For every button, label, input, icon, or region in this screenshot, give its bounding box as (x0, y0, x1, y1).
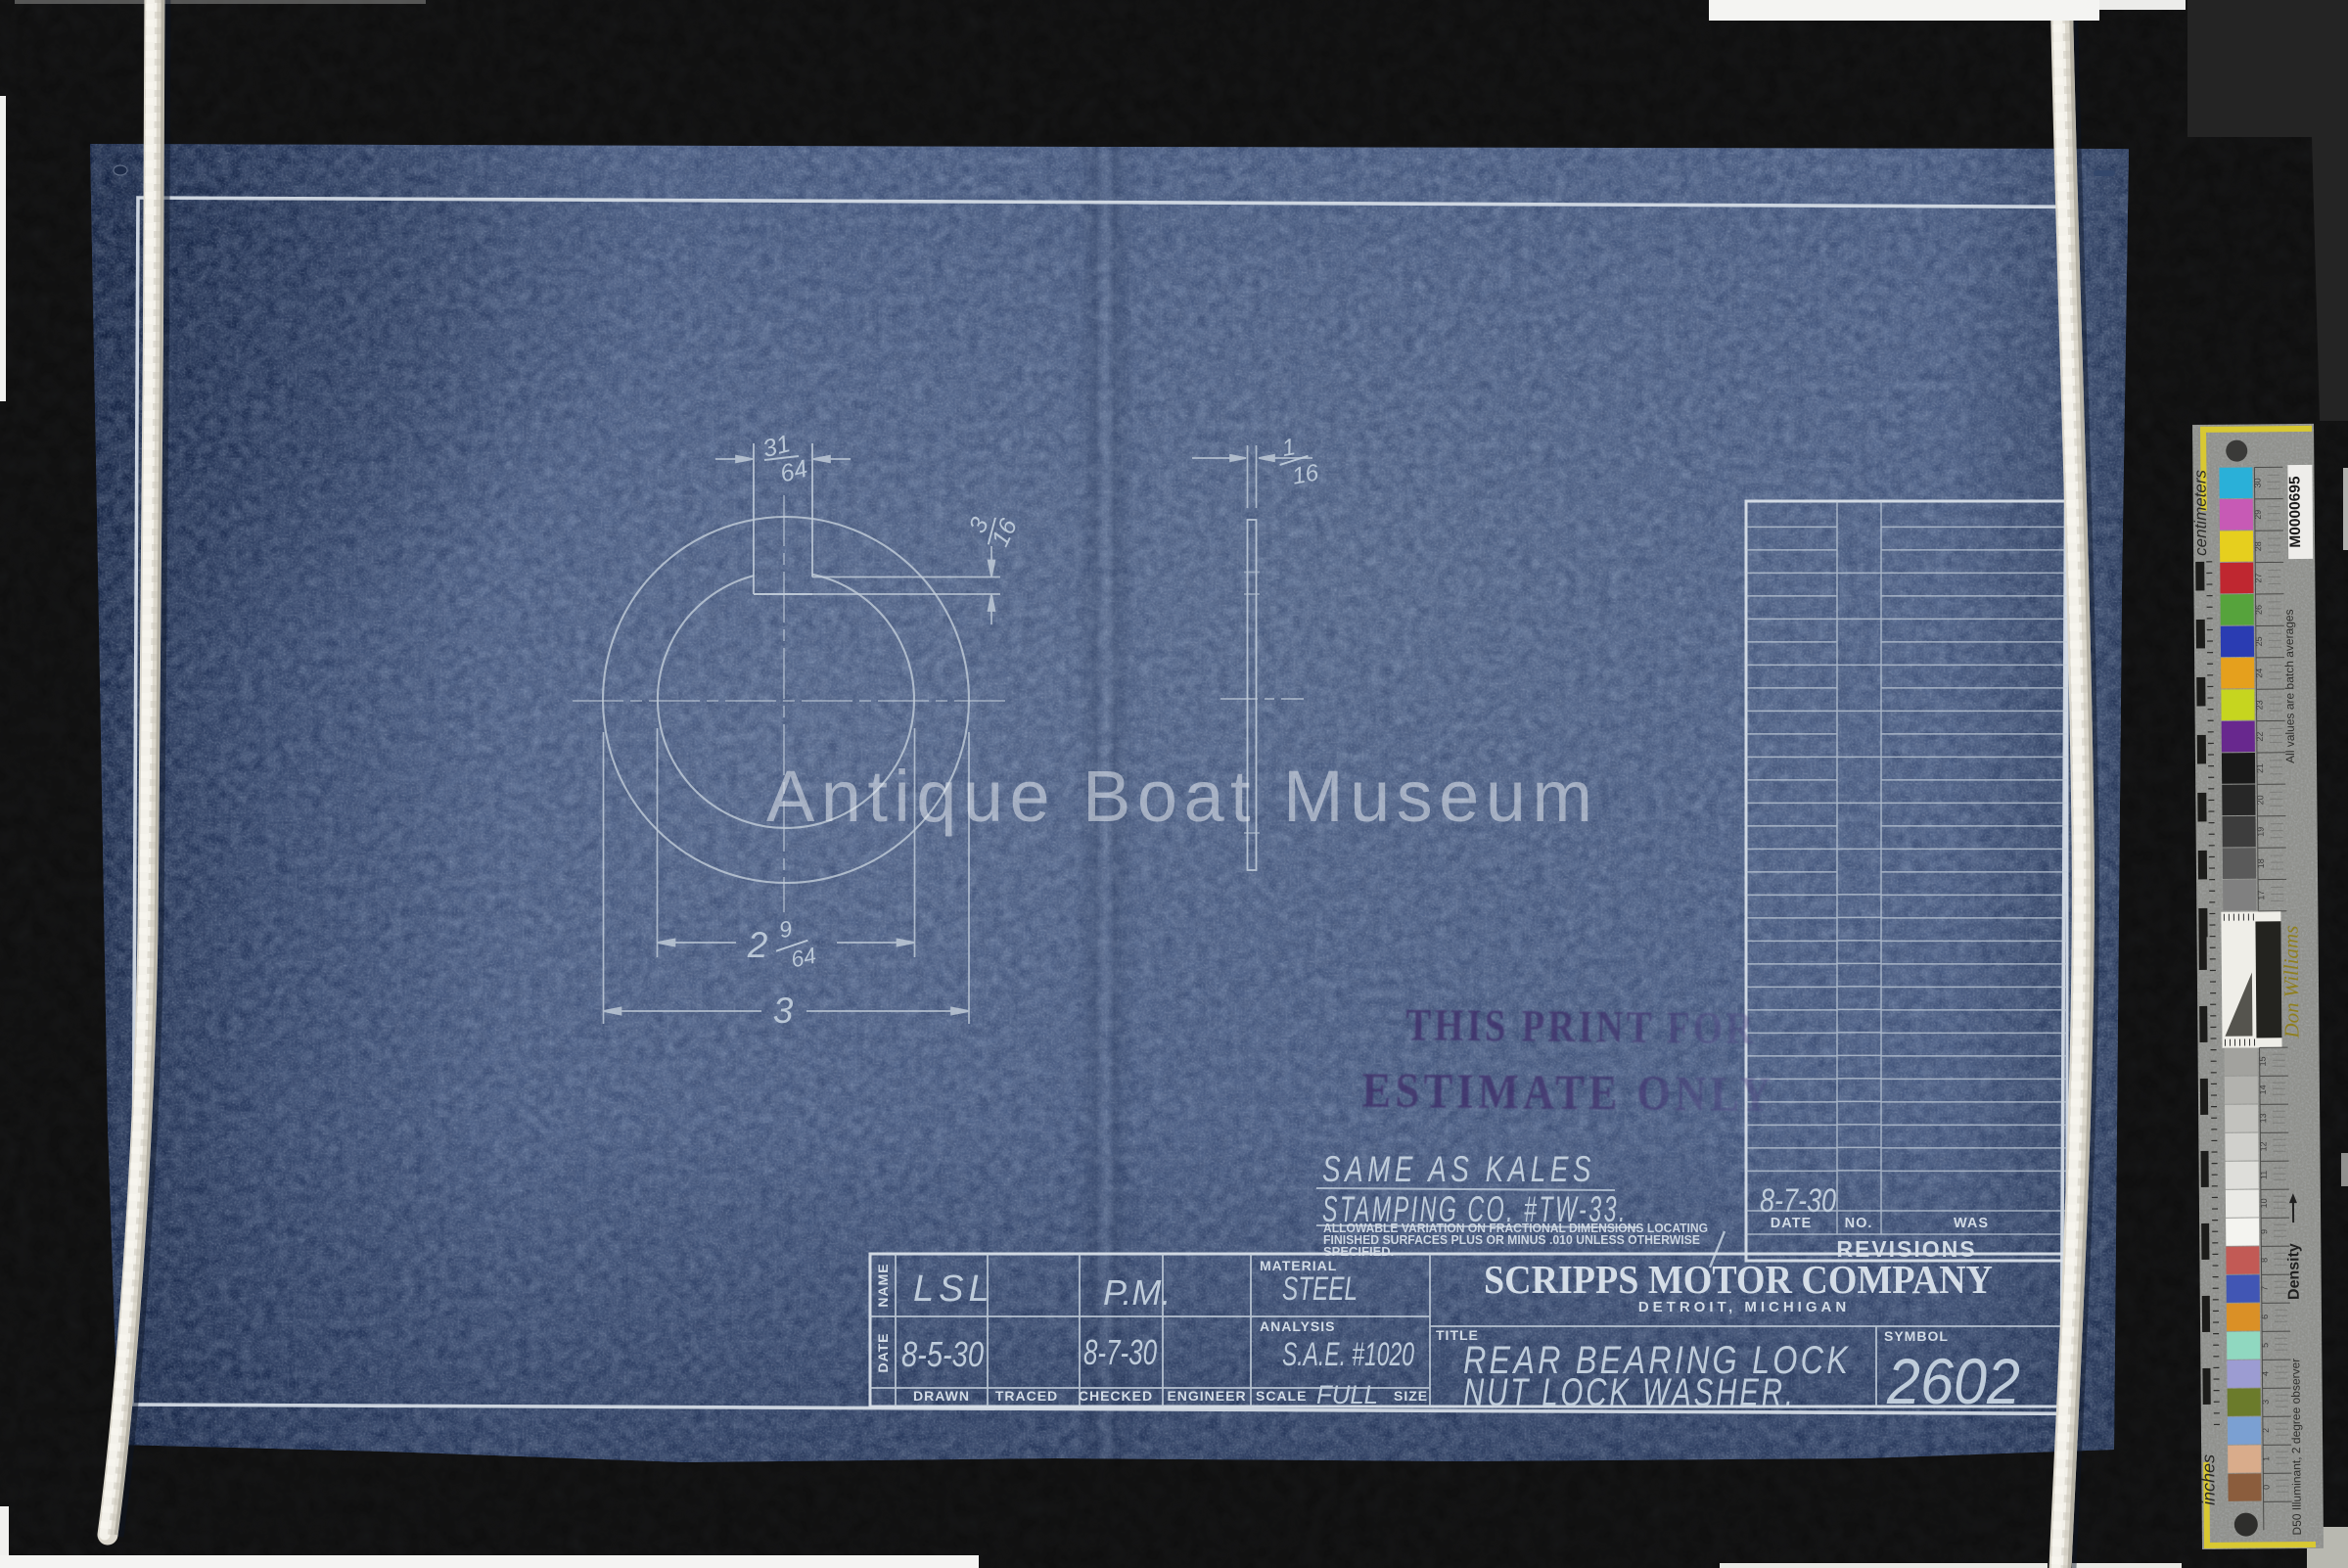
svg-text:16: 16 (1290, 459, 1321, 489)
svg-text:17: 17 (2256, 891, 2266, 900)
svg-text:2: 2 (747, 925, 768, 965)
svg-text:22: 22 (2255, 732, 2265, 742)
svg-text:NO.: NO. (1845, 1216, 1873, 1231)
svg-text:Don Williams: Don Williams (2279, 926, 2303, 1039)
svg-text:8-7-30: 8-7-30 (1760, 1182, 1836, 1220)
svg-text:18: 18 (2256, 858, 2266, 868)
svg-text:8-5-30: 8-5-30 (901, 1334, 984, 1374)
svg-text:15: 15 (2258, 1056, 2268, 1066)
svg-text:DETROIT, MICHIGAN: DETROIT, MICHIGAN (1638, 1299, 1850, 1315)
svg-text:14: 14 (2258, 1084, 2268, 1094)
svg-text:TRACED: TRACED (995, 1388, 1058, 1404)
svg-text:centimeters: centimeters (2190, 469, 2210, 556)
svg-text:6: 6 (2260, 1314, 2270, 1319)
svg-text:ENGINEER: ENGINEER (1167, 1388, 1246, 1404)
svg-text:8-7-30: 8-7-30 (1083, 1332, 1157, 1372)
svg-text:7: 7 (2260, 1286, 2270, 1291)
svg-text:DATE: DATE (875, 1332, 891, 1372)
svg-text:27: 27 (2253, 574, 2263, 583)
svg-text:THIS PRINT FOR: THIS PRINT FOR (1405, 999, 1757, 1054)
svg-text:NUT LOCK WASHER.: NUT LOCK WASHER. (1463, 1371, 1796, 1414)
svg-text:24: 24 (2254, 669, 2264, 678)
svg-text:SCRIPPS MOTOR COMPANY: SCRIPPS MOTOR COMPANY (1484, 1257, 1993, 1302)
svg-text:12: 12 (2258, 1141, 2268, 1151)
svg-text:26: 26 (2254, 605, 2264, 615)
svg-text:NAME: NAME (875, 1263, 891, 1307)
svg-text:CHECKED: CHECKED (1079, 1388, 1153, 1404)
svg-text:21: 21 (2255, 763, 2265, 773)
svg-text:19: 19 (2256, 827, 2266, 837)
svg-text:10: 10 (2259, 1198, 2269, 1208)
svg-text:SCALE: SCALE (1256, 1388, 1307, 1404)
svg-text:28: 28 (2253, 541, 2263, 551)
svg-text:P.M.: P.M. (1103, 1272, 1171, 1313)
svg-text:30: 30 (2252, 478, 2262, 487)
svg-text:25: 25 (2254, 636, 2264, 646)
svg-text:DRAWN: DRAWN (913, 1388, 970, 1404)
svg-text:ANALYSIS: ANALYSIS (1260, 1318, 1336, 1334)
svg-text:20: 20 (2255, 795, 2265, 805)
svg-text:5: 5 (2260, 1343, 2270, 1348)
svg-text:4: 4 (2260, 1371, 2270, 1376)
svg-text:ESTIMATE ONLY: ESTIMATE ONLY (1361, 1064, 1775, 1123)
svg-text:3: 3 (773, 991, 794, 1031)
svg-text:2602: 2602 (1886, 1345, 2020, 1417)
svg-text:All values are batch averages: All values are batch averages (2282, 609, 2297, 763)
svg-text:SIZE: SIZE (1394, 1388, 1428, 1404)
svg-text:13: 13 (2258, 1113, 2268, 1123)
svg-text:LSL: LSL (913, 1268, 994, 1310)
svg-text:M0000695: M0000695 (2286, 476, 2304, 548)
svg-text:1: 1 (2261, 1456, 2271, 1461)
svg-text:SYMBOL: SYMBOL (1884, 1328, 1949, 1344)
svg-text:64: 64 (789, 943, 818, 973)
svg-text:SAME AS KALES: SAME AS KALES (1322, 1149, 1595, 1189)
svg-text:23: 23 (2254, 700, 2264, 710)
svg-text:8: 8 (2259, 1258, 2269, 1263)
svg-text:11: 11 (2259, 1171, 2269, 1179)
svg-text:inches: inches (2198, 1454, 2218, 1505)
svg-text:WAS: WAS (1954, 1216, 1989, 1231)
svg-text:Density: Density (2285, 1243, 2303, 1300)
svg-text:STEEL: STEEL (1282, 1270, 1358, 1308)
svg-text:9: 9 (2259, 1229, 2269, 1234)
svg-text:3: 3 (2261, 1400, 2271, 1405)
svg-text:29: 29 (2253, 510, 2263, 520)
svg-text:0: 0 (2261, 1485, 2271, 1490)
svg-text:SPECIFIED.: SPECIFIED. (1323, 1244, 1394, 1259)
svg-text:S.A.E. #1020: S.A.E. #1020 (1282, 1336, 1414, 1373)
svg-text:2: 2 (2261, 1428, 2271, 1433)
svg-text:D50 Illuminant, 2 degree obser: D50 Illuminant, 2 degree observer (2288, 1359, 2304, 1536)
svg-text:FULL: FULL (1316, 1380, 1378, 1409)
